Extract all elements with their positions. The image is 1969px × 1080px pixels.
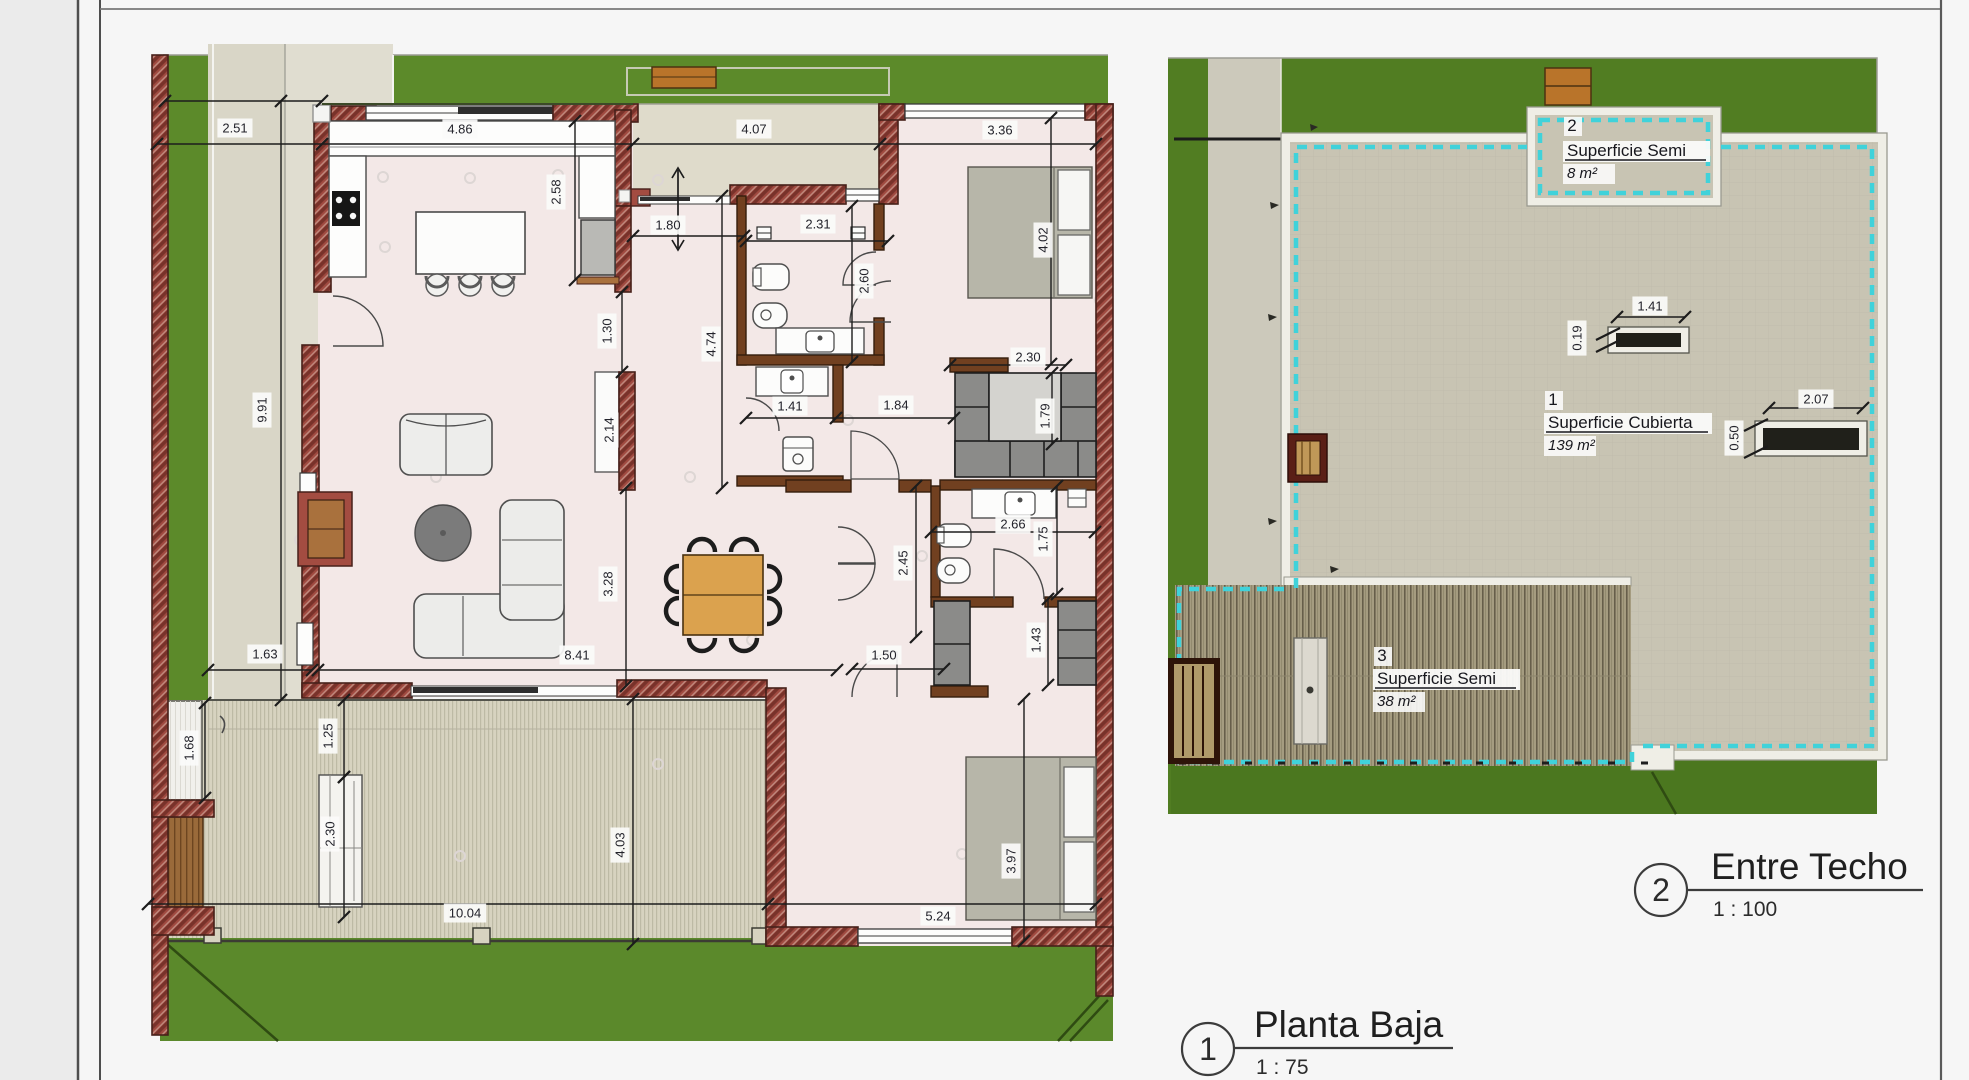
svg-text:0.50: 0.50 xyxy=(1727,425,1742,450)
svg-text:38 m²: 38 m² xyxy=(1377,693,1416,710)
svg-text:2.30: 2.30 xyxy=(1015,350,1040,365)
svg-text:2: 2 xyxy=(1652,872,1670,908)
svg-text:1.50: 1.50 xyxy=(871,648,896,663)
svg-text:4.74: 4.74 xyxy=(704,331,719,356)
svg-text:139 m²: 139 m² xyxy=(1548,437,1596,454)
svg-text:0.19: 0.19 xyxy=(1570,325,1585,350)
svg-text:1.68: 1.68 xyxy=(182,735,197,760)
svg-text:9.91: 9.91 xyxy=(255,397,270,422)
svg-text:1.79: 1.79 xyxy=(1038,403,1053,428)
svg-text:1.84: 1.84 xyxy=(883,398,908,413)
svg-text:3.28: 3.28 xyxy=(601,571,616,596)
svg-text:2.07: 2.07 xyxy=(1803,392,1828,407)
svg-text:Entre Techo: Entre Techo xyxy=(1711,846,1908,887)
svg-text:3.36: 3.36 xyxy=(987,123,1012,138)
svg-text:2.30: 2.30 xyxy=(323,821,338,846)
svg-text:Planta Baja: Planta Baja xyxy=(1254,1004,1444,1045)
svg-text:1.41: 1.41 xyxy=(1637,299,1662,314)
svg-text:Superficie Semi: Superficie Semi xyxy=(1567,141,1686,160)
svg-text:4.86: 4.86 xyxy=(447,122,472,137)
svg-text:1.41: 1.41 xyxy=(777,399,802,414)
svg-text:1.80: 1.80 xyxy=(655,218,680,233)
svg-text:8 m²: 8 m² xyxy=(1567,165,1598,182)
svg-text:2.14: 2.14 xyxy=(602,417,617,442)
svg-text:2.60: 2.60 xyxy=(857,268,872,293)
svg-text:2.66: 2.66 xyxy=(1000,517,1025,532)
svg-text:3: 3 xyxy=(1377,646,1386,665)
svg-text:8.41: 8.41 xyxy=(564,648,589,663)
svg-text:1.30: 1.30 xyxy=(600,318,615,343)
svg-text:4.02: 4.02 xyxy=(1036,227,1051,252)
svg-text:1: 1 xyxy=(1548,390,1557,409)
svg-text:1.75: 1.75 xyxy=(1036,526,1051,551)
svg-text:1 : 100: 1 : 100 xyxy=(1713,898,1777,921)
svg-text:5.24: 5.24 xyxy=(925,909,950,924)
svg-text:1.25: 1.25 xyxy=(321,723,336,748)
svg-text:3.97: 3.97 xyxy=(1004,848,1019,873)
svg-text:2.45: 2.45 xyxy=(896,550,911,575)
svg-text:2.51: 2.51 xyxy=(222,121,247,136)
svg-text:10.04: 10.04 xyxy=(449,906,482,921)
svg-text:1.43: 1.43 xyxy=(1029,627,1044,652)
svg-text:Superficie Semi: Superficie Semi xyxy=(1377,669,1496,688)
svg-text:Superficie Cubierta: Superficie Cubierta xyxy=(1548,413,1693,432)
svg-text:1 : 75: 1 : 75 xyxy=(1256,1056,1309,1079)
svg-text:1.63: 1.63 xyxy=(252,647,277,662)
svg-text:2.31: 2.31 xyxy=(805,217,830,232)
svg-text:2.58: 2.58 xyxy=(549,179,564,204)
svg-text:2: 2 xyxy=(1567,116,1576,135)
svg-text:4.03: 4.03 xyxy=(613,832,628,857)
svg-text:4.07: 4.07 xyxy=(741,122,766,137)
svg-text:1: 1 xyxy=(1199,1031,1217,1067)
